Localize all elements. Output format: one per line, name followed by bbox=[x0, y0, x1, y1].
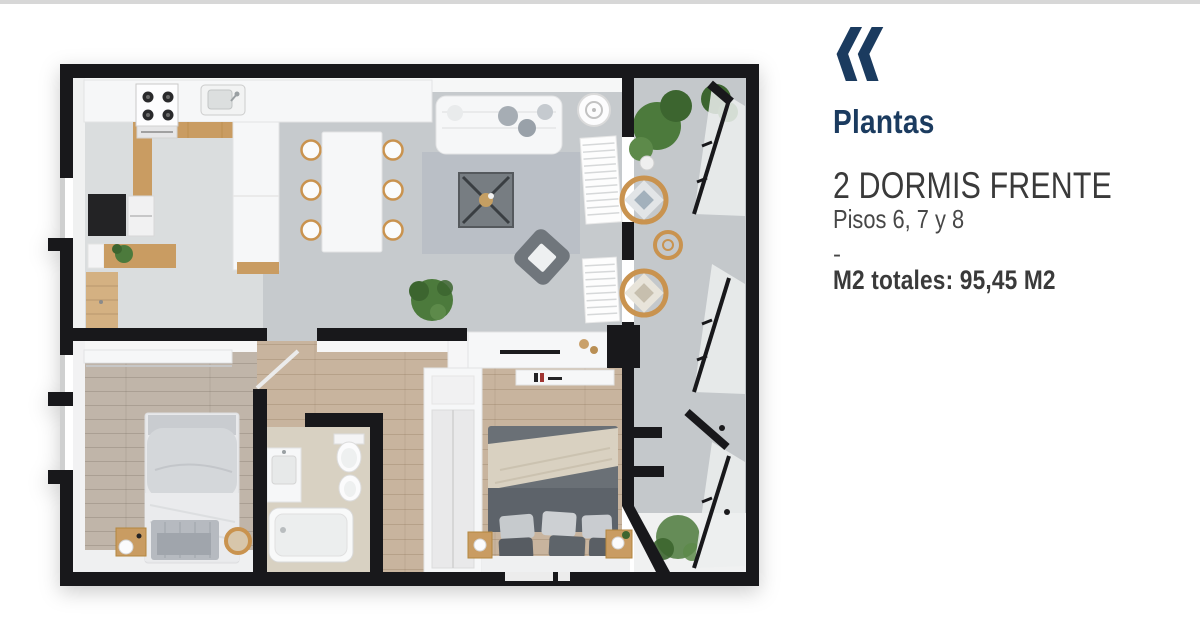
total-area-label: M2 totales: bbox=[833, 265, 953, 295]
bedroom-2 bbox=[424, 332, 632, 574]
wall-top bbox=[60, 64, 759, 78]
lounge-chair bbox=[622, 271, 666, 315]
floor-plan-image bbox=[0, 0, 770, 643]
lounge-chair bbox=[622, 178, 666, 222]
dining-area bbox=[302, 132, 403, 252]
nightstand bbox=[116, 528, 146, 556]
wall-pillar bbox=[48, 238, 73, 251]
kitchen-sink bbox=[201, 85, 245, 115]
louver-curtain bbox=[582, 257, 619, 323]
coffee-table bbox=[459, 173, 513, 227]
wall-left bbox=[60, 64, 73, 178]
section-title: Plantas bbox=[833, 103, 1190, 141]
total-area-value: 95,45 M2 bbox=[960, 265, 1056, 295]
basket bbox=[226, 529, 250, 553]
bathroom-vanity bbox=[267, 448, 301, 502]
info-panel: Plantas 2 DORMIS FRENTE Pisos 6, 7 y 8 -… bbox=[833, 27, 1193, 327]
kitchen-pantry bbox=[233, 122, 279, 274]
floor-plan-svg bbox=[0, 0, 770, 643]
kitchen-stove bbox=[136, 84, 178, 138]
kitchen-fridge bbox=[88, 194, 126, 236]
book-shelf bbox=[516, 370, 614, 385]
louver-curtain bbox=[580, 136, 622, 224]
unit-total-area: M2 totales: 95,45 M2 bbox=[833, 265, 1200, 296]
wall-pillar bbox=[48, 392, 73, 406]
sofa bbox=[436, 96, 562, 154]
pendant-lamp bbox=[578, 94, 610, 126]
kitchen-oven bbox=[128, 196, 154, 236]
nightstand bbox=[606, 530, 632, 558]
wall-pillar bbox=[48, 470, 73, 484]
dining-table bbox=[322, 132, 382, 252]
double-chevron-left-icon bbox=[833, 27, 895, 81]
wall-bottom bbox=[60, 572, 759, 586]
bidet bbox=[339, 475, 361, 501]
unit-floors: Pisos 6, 7 y 8 bbox=[833, 204, 1186, 235]
nightstand bbox=[468, 532, 492, 558]
bathtub bbox=[269, 508, 353, 562]
bedroom-2-bed bbox=[488, 426, 618, 561]
media-console bbox=[468, 332, 608, 368]
unit-name: 2 DORMIS FRENTE bbox=[833, 165, 1194, 207]
wall-right bbox=[746, 64, 759, 586]
